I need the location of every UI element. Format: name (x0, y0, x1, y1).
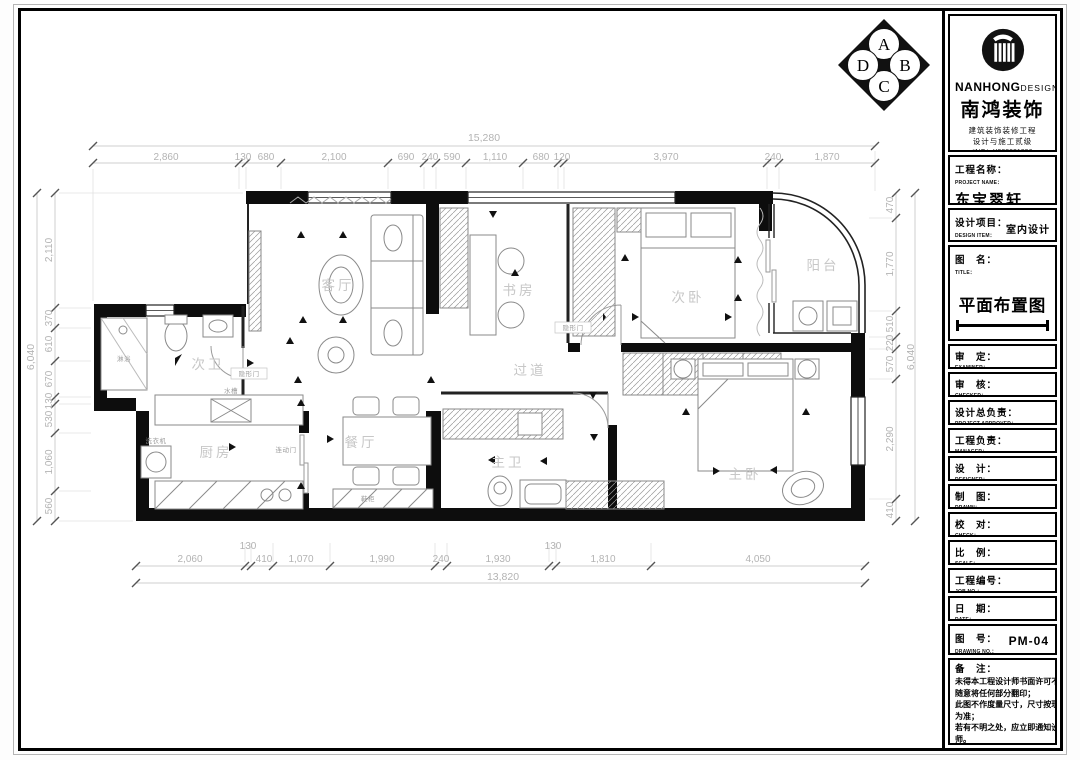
compass-letter-a: A (878, 35, 891, 54)
sofa (371, 215, 423, 355)
sheet-frame: 15,280 2,860 130 680 2,100 690 240 590 1… (18, 8, 1063, 751)
shoe-cabinet-label: 鞋柜 (361, 494, 375, 503)
title-underline-bar (957, 324, 1048, 327)
titleblock-row-examiner: 审 定： EXAMINER： (948, 344, 1057, 369)
svg-text:690: 690 (398, 152, 415, 163)
washer-label: 洗衣机 (146, 436, 167, 445)
balcony-sliding-door (766, 240, 770, 272)
svg-text:530: 530 (44, 410, 55, 427)
titleblock-row-drawn: 制 图： DRAWN： (948, 484, 1057, 509)
svg-text:1,990: 1,990 (369, 554, 394, 565)
cert-line-2: 设计与施工贰级 (955, 136, 1050, 147)
room-label-balcony: 阳台 (807, 258, 840, 273)
brand-cn: 南鸿装饰 (955, 95, 1050, 122)
svg-text:510: 510 (885, 315, 896, 332)
titleblock-row-checked: 审 核： CHECKED： (948, 372, 1057, 397)
room-label-corridor: 过道 (514, 363, 547, 378)
compass-letter-c: C (878, 77, 889, 96)
svg-text:570: 570 (885, 355, 896, 372)
svg-text:1,810: 1,810 (590, 554, 615, 565)
company-logo-icon (972, 22, 1034, 78)
orientation-compass: A B C D (832, 13, 936, 117)
company-logo-cell: NANHONGDESIGN 南鸿装饰 建筑装饰装修工程 设计与施工贰级 *NO：… (948, 14, 1057, 152)
titleblock-row-project-approved: 设计总负责： PROJECT APPROVED： (948, 400, 1057, 425)
svg-text:590: 590 (444, 152, 461, 163)
room-label-bath2: 次卫 (192, 357, 225, 372)
notes-cell: 备 注： 未得本工程设计师书面许可不得 随意将任何部分翻印； 此图不作度量尺寸，… (948, 658, 1057, 745)
shower-area (101, 318, 147, 390)
tv-cabinet (249, 231, 261, 331)
svg-text:1,930: 1,930 (485, 554, 510, 565)
toilet-master-bath (488, 476, 512, 506)
svg-text:4,050: 4,050 (745, 554, 770, 565)
brand-en: NANHONGDESIGN (955, 80, 1050, 94)
svg-text:130: 130 (44, 392, 55, 409)
room-label-kitchen: 厨房 (200, 445, 233, 460)
svg-text:240: 240 (422, 152, 439, 163)
lounge-chair (778, 466, 828, 510)
svg-text:680: 680 (533, 152, 550, 163)
wardrobe-second-bedroom (573, 208, 615, 336)
titleblock-row-check: 校 对： CHECK： (948, 512, 1057, 537)
svg-text:2,860: 2,860 (153, 152, 178, 163)
bookshelf (440, 208, 468, 308)
titleblock-row-manager: 工程负责： MANAGER： (948, 428, 1057, 453)
pouf (318, 337, 354, 373)
room-label-study: 书房 (503, 283, 536, 298)
svg-text:130: 130 (545, 541, 562, 552)
svg-text:15,280: 15,280 (468, 132, 500, 144)
hidden-door-label: 隐形门 (563, 323, 584, 332)
titleblock-row-scale: 比 例： SCALE： (948, 540, 1057, 565)
chair (498, 248, 524, 274)
toilet-second-bath (165, 321, 187, 351)
svg-text:240: 240 (433, 554, 450, 565)
design-item-cell: 设计项目： DESIGN ITEM： 室内设计 (948, 208, 1057, 242)
svg-text:410: 410 (256, 554, 273, 565)
svg-text:2,060: 2,060 (177, 554, 202, 565)
compass-letter-d: D (857, 56, 869, 75)
titleblock-row-designer: 设 计： DESIGNER： (948, 456, 1057, 481)
vanity-second-bath (203, 315, 233, 337)
svg-text:2,110: 2,110 (44, 237, 55, 262)
svg-text:1,110: 1,110 (483, 152, 508, 163)
wardrobe-master-bedroom (566, 481, 664, 509)
cert-number: *NO：X233021396 (955, 148, 1050, 153)
room-label-dining: 餐厅 (345, 435, 378, 450)
svg-text:610: 610 (44, 335, 55, 352)
project-name-cell: 工程名称： PROJECT NAME： 东宝翠轩 (948, 155, 1057, 205)
desk (470, 235, 496, 335)
sink-label: 水槽 (224, 386, 238, 395)
bed-second-bedroom (641, 208, 735, 343)
svg-text:120: 120 (554, 152, 571, 163)
svg-text:240: 240 (765, 152, 782, 163)
shower-label: 淋浴 (117, 354, 131, 363)
compass-letter-b: B (899, 56, 910, 75)
svg-text:470: 470 (885, 196, 896, 213)
shoe-cabinet (333, 489, 433, 508)
svg-text:3,970: 3,970 (653, 152, 678, 163)
svg-text:670: 670 (44, 370, 55, 387)
room-label-bath1: 主卫 (492, 455, 525, 470)
titleblock-row-job-no: 工程编号： JOB NO.： (948, 568, 1057, 593)
room-label-bedroom2: 次卧 (672, 290, 705, 305)
svg-text:130: 130 (240, 541, 257, 552)
sliding-door-label: 连动门 (276, 445, 297, 454)
drawing-title-value: 平面布置图 (955, 292, 1050, 316)
svg-text:1,770: 1,770 (885, 251, 896, 276)
room-label-bedroom1: 主卧 (729, 467, 762, 482)
kitchen-sliding-door (300, 435, 304, 465)
svg-text:370: 370 (44, 309, 55, 326)
floor-plan: 15,280 2,860 130 680 2,100 690 240 590 1… (21, 11, 943, 745)
svg-text:680: 680 (258, 152, 275, 163)
title-block: NANHONGDESIGN 南鸿装饰 建筑装饰装修工程 设计与施工贰级 *NO：… (942, 11, 1060, 748)
balcony-sink (827, 301, 857, 331)
svg-text:410: 410 (885, 501, 896, 518)
drawing-no-value: PM-04 (1009, 634, 1049, 648)
titleblock-row-date: 日 期： DATE： (948, 596, 1057, 621)
svg-text:130: 130 (235, 152, 252, 163)
design-item-value: 室内设计 (1006, 221, 1050, 236)
balcony-washer (793, 301, 823, 331)
project-name-value: 东宝翠轩 (955, 189, 1050, 205)
svg-text:1,070: 1,070 (288, 554, 313, 565)
chair (498, 302, 524, 328)
drawing-title-cell: 图 名： TITLE： 平面布置图 (948, 245, 1057, 341)
svg-text:6,040: 6,040 (25, 344, 37, 370)
drawing-sheet: 15,280 2,860 130 680 2,100 690 240 590 1… (0, 0, 1080, 760)
hidden-door-label: 隐形门 (239, 369, 260, 378)
svg-text:13,820: 13,820 (487, 571, 519, 583)
svg-text:1,870: 1,870 (814, 152, 839, 163)
svg-text:220: 220 (885, 334, 896, 351)
drawing-no-cell: 图 号： DRAWING NO.： PM-04 (948, 624, 1057, 655)
svg-text:2,100: 2,100 (321, 152, 346, 163)
room-label-living: 客厅 (322, 277, 355, 293)
svg-text:6,040: 6,040 (905, 344, 917, 370)
svg-text:2,290: 2,290 (885, 426, 896, 451)
svg-text:560: 560 (44, 497, 55, 514)
bed-master-bedroom (671, 359, 819, 471)
svg-text:1,060: 1,060 (44, 449, 55, 474)
cert-line-1: 建筑装饰装修工程 (955, 125, 1050, 136)
